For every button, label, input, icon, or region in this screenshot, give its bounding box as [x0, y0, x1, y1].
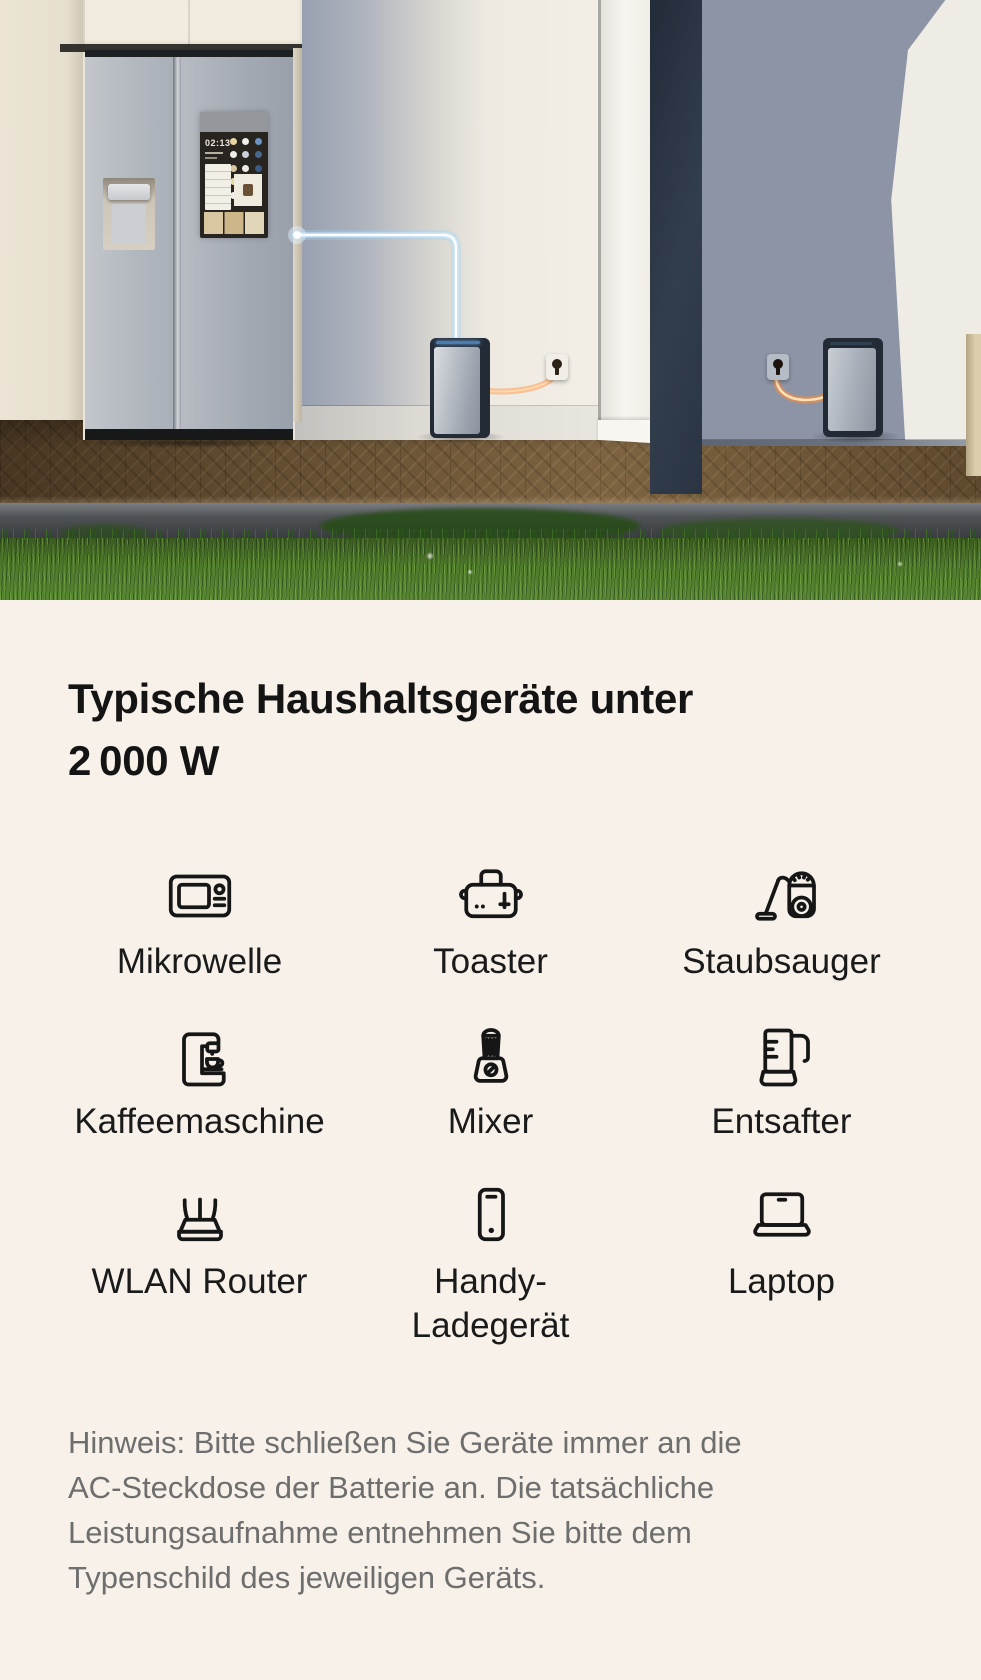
- laptop-icon: [746, 1180, 818, 1252]
- battery-front: [434, 347, 480, 434]
- wall-outlet: [767, 354, 789, 380]
- appliance-cell: Handy-Ladegerät: [408, 1180, 573, 1348]
- appliance-cell: Toaster: [433, 860, 548, 984]
- battery-status-light: [436, 341, 480, 344]
- appliance-label: Toaster: [433, 940, 548, 984]
- note-line: Hinweis: Bitte schließen Sie Geräte imme…: [68, 1420, 913, 1465]
- vacuum-cleaner-icon: [745, 860, 817, 932]
- battery-front: [828, 348, 876, 431]
- appliance-cell: Mikrowelle: [117, 860, 282, 984]
- furniture-edge: [966, 334, 981, 476]
- hero-image: 02:13: [0, 0, 981, 600]
- grass-blades: [0, 529, 981, 540]
- appliance-label: Laptop: [728, 1260, 835, 1304]
- fridge-floor-shadow: [80, 438, 300, 448]
- appliance-label: Handy-Ladegerät: [408, 1260, 573, 1348]
- appliance-label: Staubsauger: [682, 940, 880, 984]
- portable-power-station: [823, 338, 883, 437]
- section-title-line: 2 000 W: [68, 730, 913, 792]
- note-line: AC-Steckdose der Batterie an. Die tatsäc…: [68, 1465, 913, 1510]
- appliance-cell: Laptop: [728, 1180, 835, 1348]
- page: 02:13: [0, 0, 981, 1680]
- phone-charger-icon: [455, 1180, 527, 1252]
- appliance-grid: Mikrowelle Toaster Staubsauger Kaffeemas…: [54, 860, 927, 1348]
- wall-outlet: [546, 354, 568, 380]
- appliance-cell: Kaffeemaschine: [74, 1020, 324, 1144]
- coffee-machine-icon: [163, 1020, 235, 1092]
- appliance-label: Kaffeemaschine: [74, 1100, 324, 1144]
- appliance-label: WLAN Router: [92, 1260, 308, 1304]
- toaster-icon: [455, 860, 527, 932]
- blender-icon: [455, 1020, 527, 1092]
- microwave-icon: [164, 860, 236, 932]
- juicer-icon: [745, 1020, 817, 1092]
- appliance-cell: WLAN Router: [92, 1180, 308, 1348]
- note-line: Leistungsaufnahme entnehmen Sie bitte de…: [68, 1510, 913, 1555]
- appliance-label: Mixer: [448, 1100, 534, 1144]
- section-title-line: Typische Haushaltsgeräte unter: [68, 668, 913, 730]
- section-title: Typische Haushaltsgeräte unter 2 000 W: [68, 668, 913, 792]
- disclaimer-note: Hinweis: Bitte schließen Sie Geräte imme…: [68, 1420, 913, 1600]
- note-line: Typenschild des jeweiligen Geräts.: [68, 1555, 913, 1600]
- grass: [0, 538, 981, 600]
- wifi-router-icon: [164, 1180, 236, 1252]
- appliance-cell: Staubsauger: [682, 860, 880, 984]
- appliance-label: Mikrowelle: [117, 940, 282, 984]
- appliance-cell: Entsafter: [711, 1020, 851, 1144]
- battery-status-light: [830, 342, 872, 345]
- portable-power-station: [430, 338, 490, 438]
- appliance-label: Entsafter: [711, 1100, 851, 1144]
- appliance-cell: Mixer: [448, 1020, 534, 1144]
- appliances-section: Typische Haushaltsgeräte unter 2 000 W M…: [0, 668, 981, 1600]
